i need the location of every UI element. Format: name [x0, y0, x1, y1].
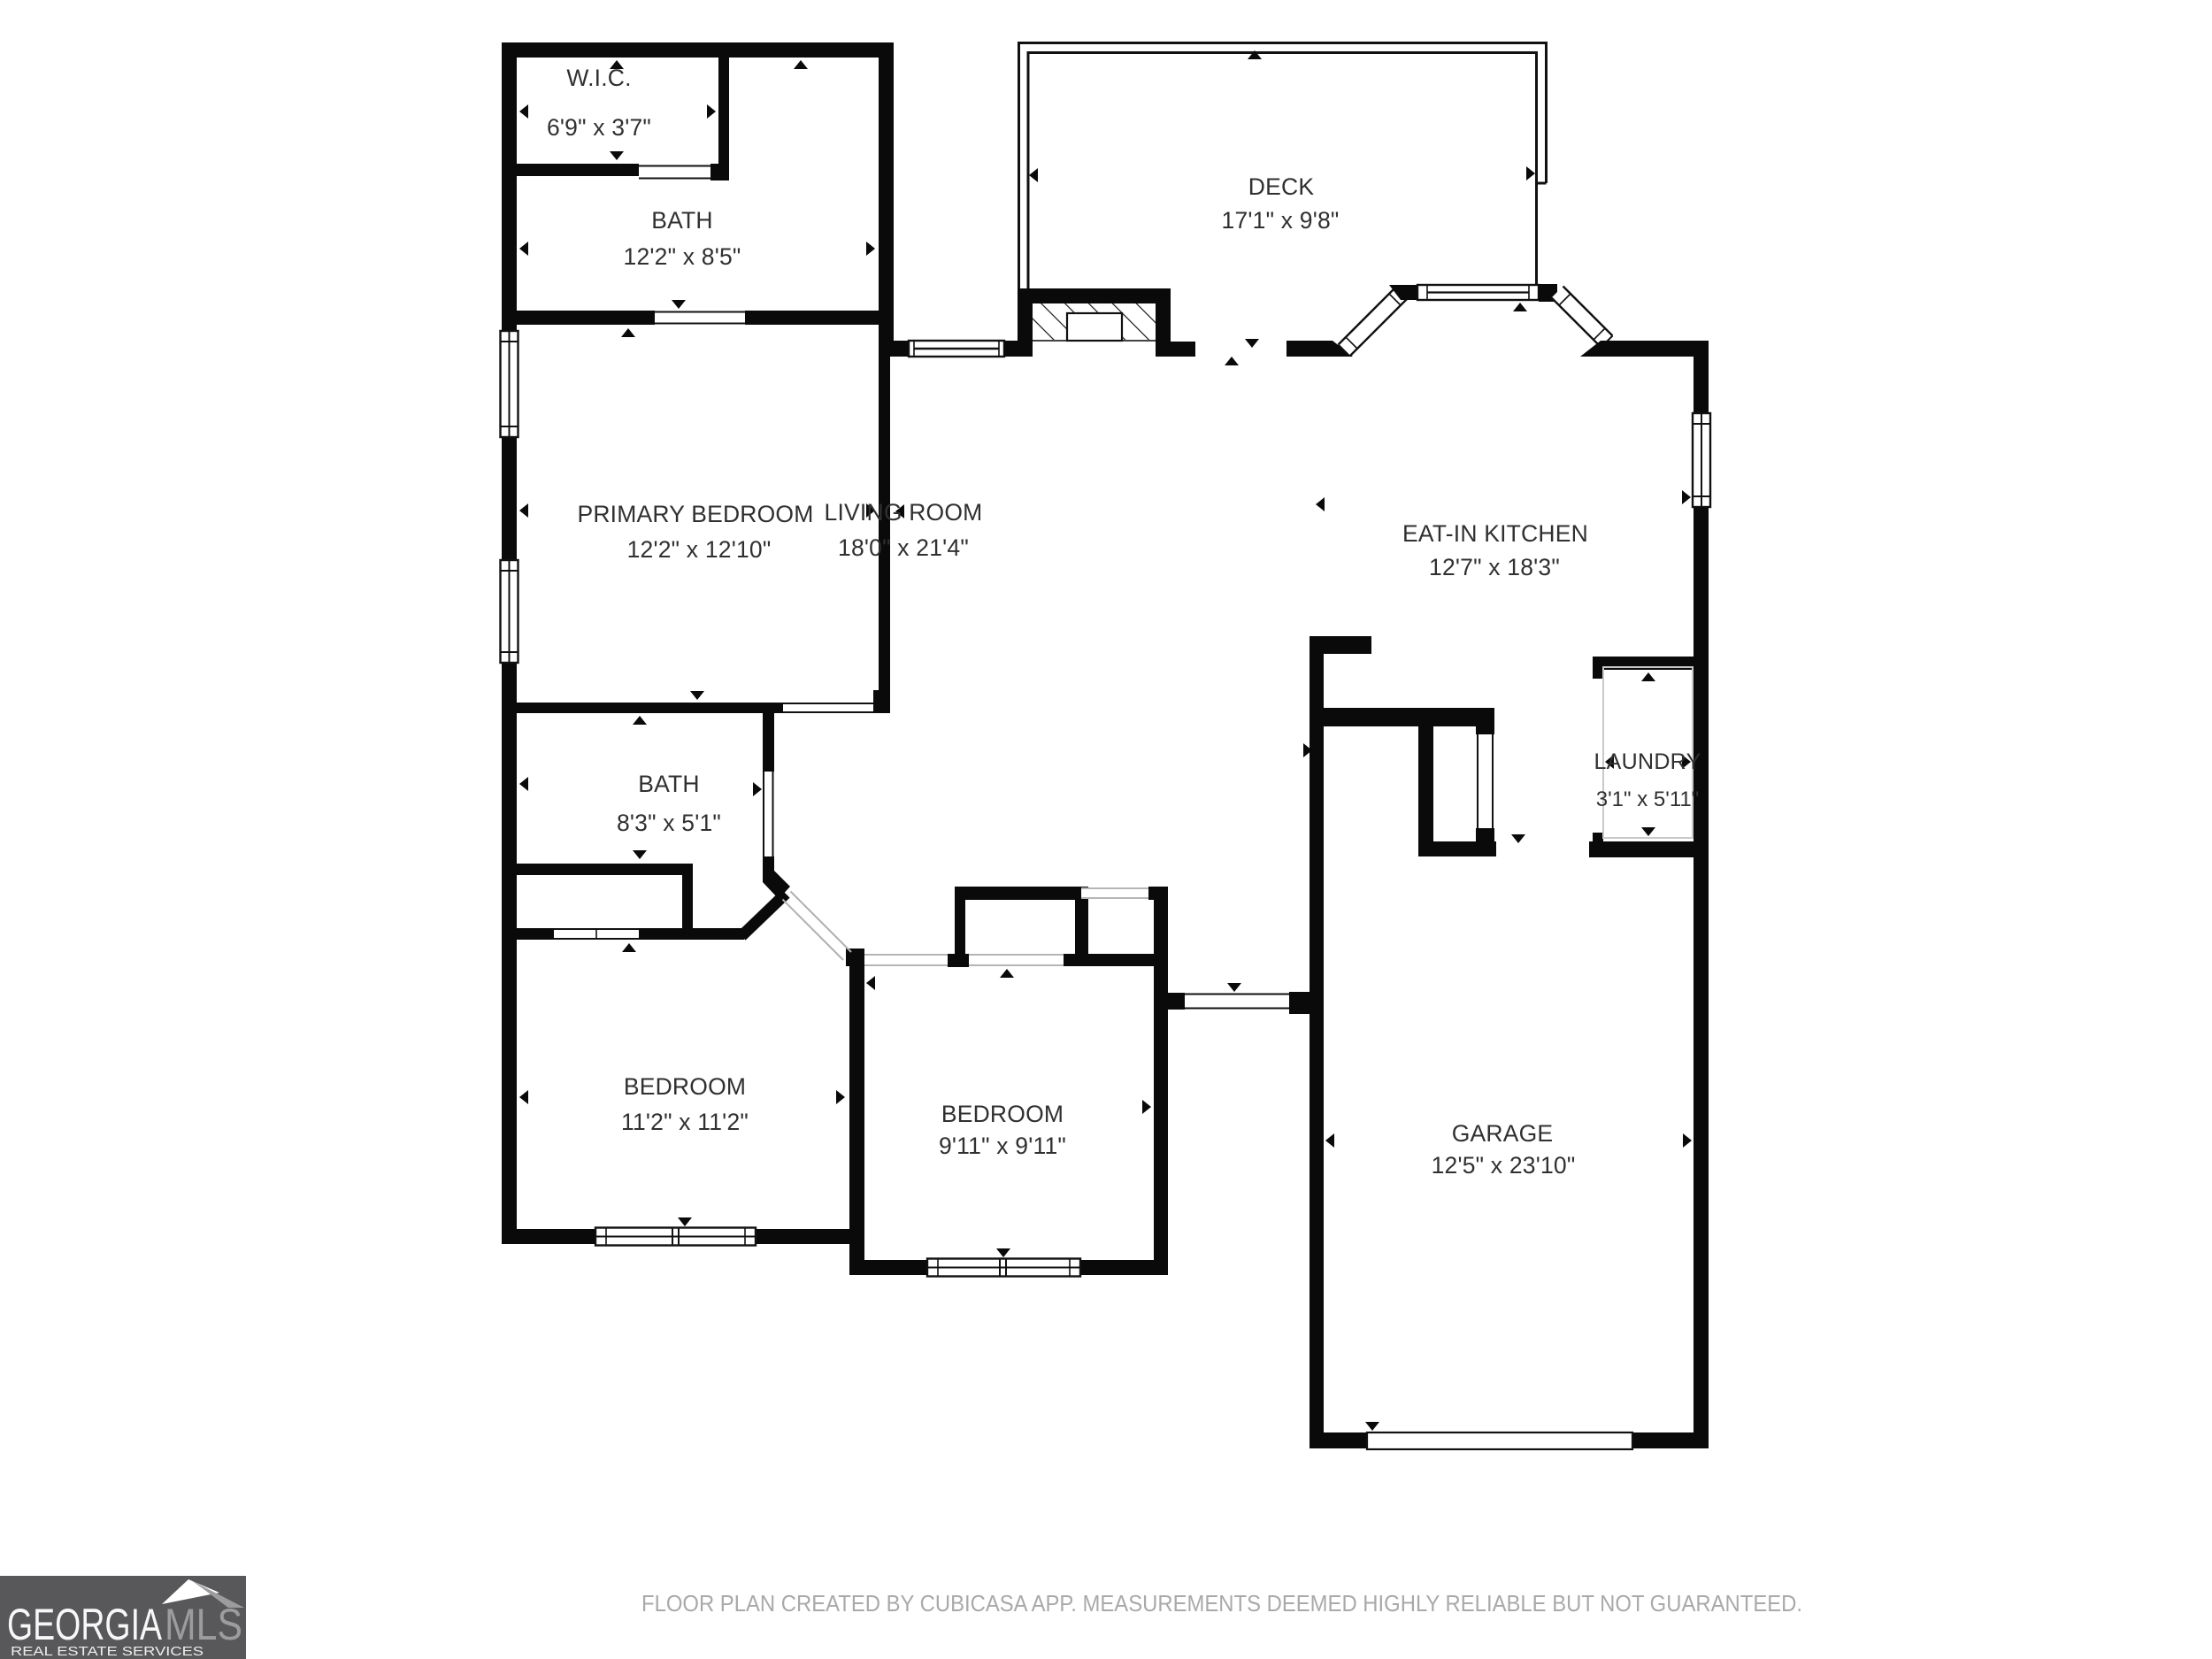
svg-text:DECK: DECK	[1248, 173, 1315, 200]
svg-text:6'9" x 3'7": 6'9" x 3'7"	[547, 114, 651, 141]
svg-text:9'11" x 9'11": 9'11" x 9'11"	[939, 1133, 1066, 1159]
svg-text:EAT-IN KITCHEN: EAT-IN KITCHEN	[1402, 520, 1588, 547]
svg-text:18'0" x 21'4": 18'0" x 21'4"	[838, 534, 969, 561]
svg-text:LIVING ROOM: LIVING ROOM	[825, 499, 983, 526]
svg-text:12'2" x 8'5": 12'2" x 8'5"	[624, 243, 741, 270]
svg-text:3'1" x 5'11": 3'1" x 5'11"	[1596, 787, 1700, 811]
svg-text:BEDROOM: BEDROOM	[624, 1073, 746, 1100]
svg-text:12'2" x 12'10": 12'2" x 12'10"	[627, 536, 772, 563]
svg-text:12'5" x 23'10": 12'5" x 23'10"	[1432, 1152, 1576, 1179]
svg-text:LAUNDRY: LAUNDRY	[1594, 749, 1701, 774]
svg-text:W.I.C.: W.I.C.	[566, 65, 631, 91]
svg-text:GEORGIA: GEORGIA	[7, 1600, 162, 1649]
svg-text:GARAGE: GARAGE	[1452, 1120, 1554, 1147]
svg-text:BEDROOM: BEDROOM	[941, 1101, 1064, 1127]
svg-text:BATH: BATH	[651, 207, 713, 234]
svg-text:PRIMARY BEDROOM: PRIMARY BEDROOM	[577, 501, 813, 527]
svg-text:12'7" x 18'3": 12'7" x 18'3"	[1429, 554, 1560, 580]
svg-text:17'1" x 9'8": 17'1" x 9'8"	[1222, 207, 1340, 234]
svg-text:REAL ESTATE SERVICES: REAL ESTATE SERVICES	[11, 1645, 204, 1659]
svg-text:BATH: BATH	[638, 771, 700, 797]
svg-text:FLOOR PLAN CREATED BY CUBICASA: FLOOR PLAN CREATED BY CUBICASA APP. MEAS…	[641, 1590, 1802, 1617]
svg-text:11'2" x 11'2": 11'2" x 11'2"	[621, 1109, 749, 1135]
svg-text:8'3" x 5'1": 8'3" x 5'1"	[617, 810, 721, 836]
